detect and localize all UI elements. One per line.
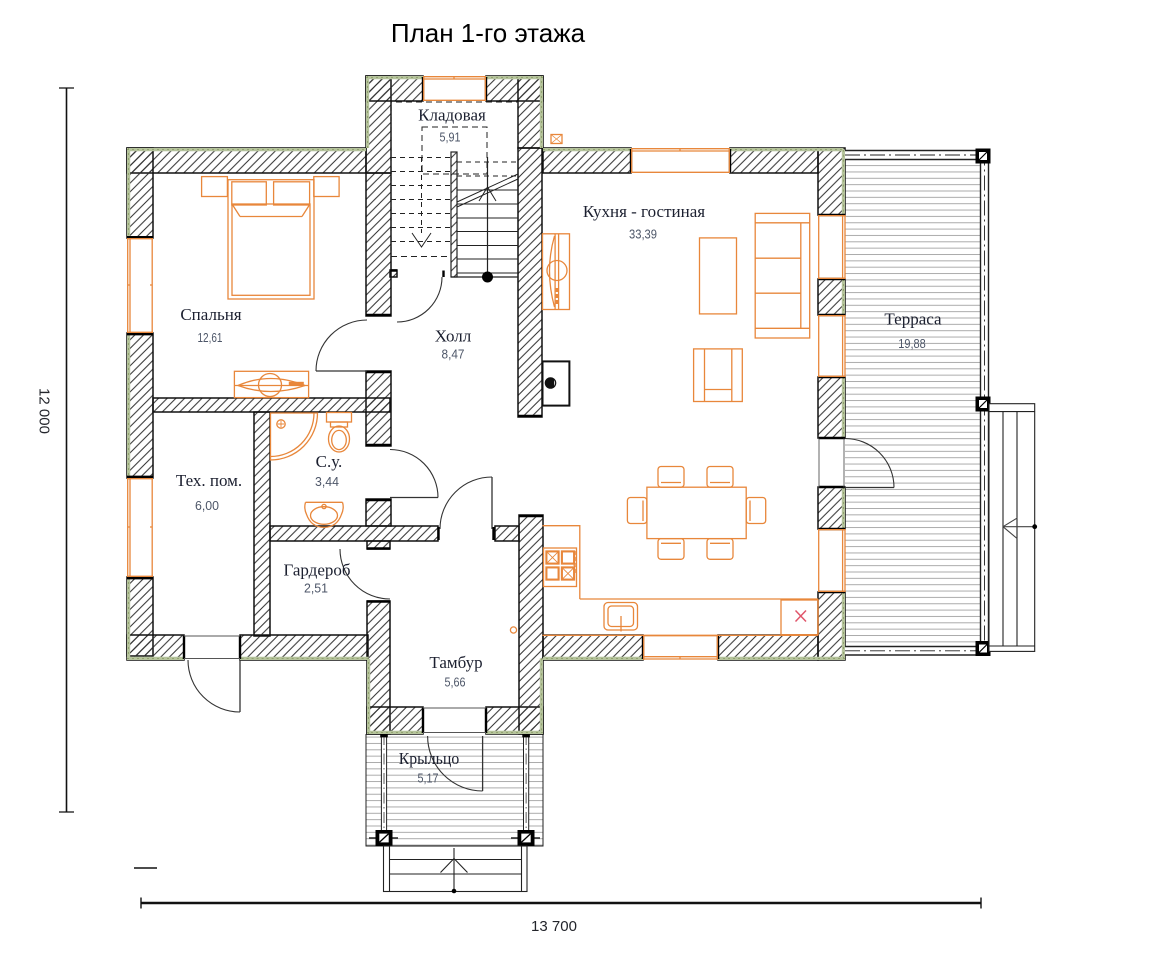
svg-text:5,91: 5,91 (440, 130, 461, 145)
svg-text:Спальня: Спальня (180, 305, 241, 324)
svg-text:5,17: 5,17 (418, 771, 439, 786)
svg-text:Гардероб: Гардероб (283, 561, 350, 580)
svg-text:План 1-го этажа: План 1-го этажа (391, 18, 586, 48)
svg-text:8,47: 8,47 (442, 347, 465, 362)
svg-text:5,66: 5,66 (445, 675, 466, 690)
svg-text:3,44: 3,44 (315, 474, 339, 489)
svg-text:12 000: 12 000 (36, 388, 53, 434)
svg-text:6,00: 6,00 (195, 498, 219, 513)
svg-text:Терраса: Терраса (884, 310, 942, 329)
svg-text:12,61: 12,61 (198, 330, 223, 345)
svg-text:Кладовая: Кладовая (418, 106, 486, 125)
svg-text:Тех. пом.: Тех. пом. (176, 471, 242, 490)
svg-text:19,88: 19,88 (898, 336, 926, 351)
svg-text:С.у.: С.у. (316, 452, 343, 471)
svg-text:Кухня - гостиная: Кухня - гостиная (583, 202, 705, 221)
svg-text:Крыльцо: Крыльцо (399, 749, 460, 768)
svg-text:Холл: Холл (435, 327, 472, 346)
svg-text:2,51: 2,51 (304, 581, 328, 596)
svg-text:33,39: 33,39 (629, 227, 657, 242)
svg-text:13 700: 13 700 (531, 918, 577, 935)
svg-text:Тамбур: Тамбур (429, 653, 482, 672)
